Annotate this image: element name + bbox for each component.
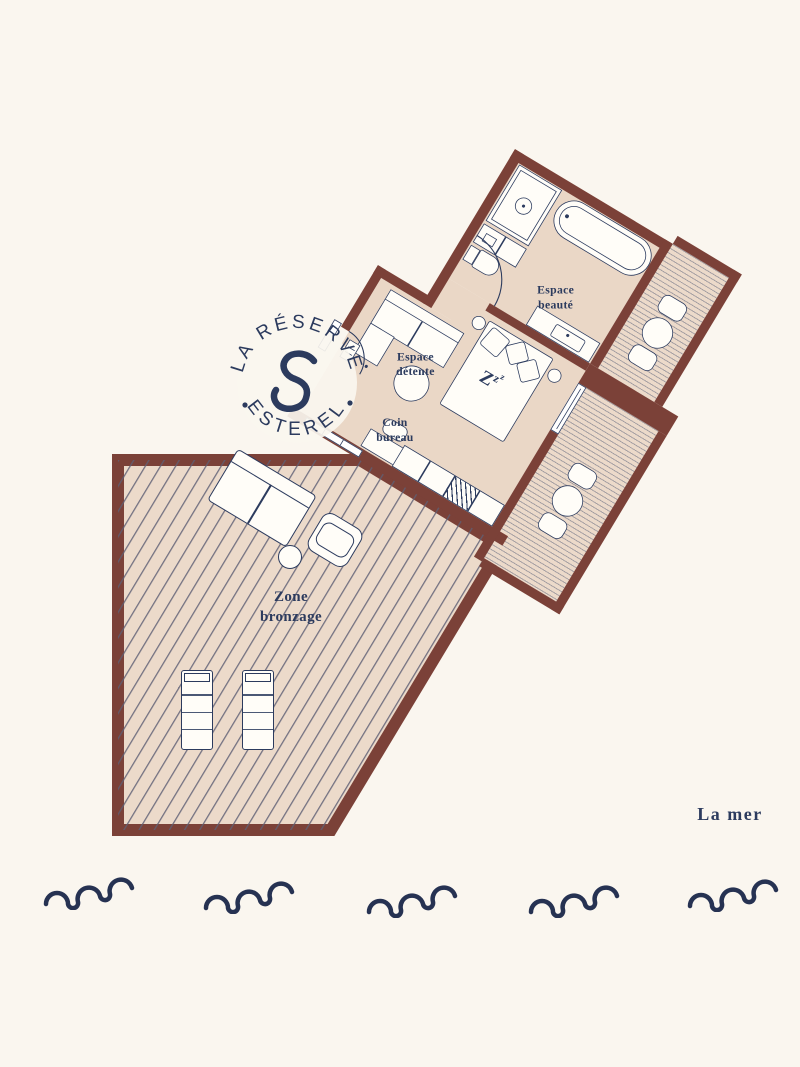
wave-icon bbox=[684, 854, 794, 912]
tanning-label-line1: Zone bbox=[213, 588, 369, 608]
console-line bbox=[345, 351, 352, 356]
wave-icon bbox=[525, 860, 635, 918]
office-label-line1: Coin bbox=[348, 416, 442, 431]
office-label-line2: bureau bbox=[348, 431, 442, 446]
beauty-label-line2: beauté bbox=[509, 298, 603, 313]
lounger-headrest bbox=[245, 673, 271, 682]
sea-label: La mer bbox=[660, 804, 800, 825]
lounger-seam bbox=[182, 729, 212, 731]
tanning-label-line2: bronzage bbox=[213, 608, 369, 628]
wave-icon bbox=[363, 860, 473, 918]
beauty-label-line1: Espace bbox=[509, 283, 603, 298]
lounger-seam bbox=[243, 729, 273, 731]
lounger-seam bbox=[182, 694, 212, 696]
lounge-label-line2: détente bbox=[369, 365, 463, 380]
office-room-label: Coin bureau bbox=[348, 416, 442, 445]
sofa-cushion-divider bbox=[407, 321, 422, 346]
outdoor-chair bbox=[304, 509, 366, 570]
console-line bbox=[348, 346, 355, 351]
lounger-seam bbox=[243, 712, 273, 714]
beauty-room-label: Espace beauté bbox=[509, 283, 603, 312]
floor-plan-canvas: Zone bronzage bbox=[0, 0, 800, 1067]
lounge-room-label: Espace détente bbox=[369, 350, 463, 379]
wardrobe-divider bbox=[418, 461, 431, 482]
lounger-headrest bbox=[184, 673, 210, 682]
outdoor-sofa-cushion-divider bbox=[247, 484, 271, 523]
window-mullion bbox=[322, 429, 326, 435]
lounger-seam bbox=[243, 694, 273, 696]
lounge-label-line1: Espace bbox=[369, 350, 463, 365]
outdoor-side-table bbox=[278, 545, 302, 569]
shelf-box bbox=[482, 233, 498, 247]
lounger-seam bbox=[182, 712, 212, 714]
wave-icon bbox=[40, 852, 150, 910]
outdoor-chair-seat bbox=[313, 520, 357, 561]
sun-lounger bbox=[181, 670, 213, 750]
wave-icon bbox=[200, 856, 310, 914]
tanning-zone-label: Zone bronzage bbox=[213, 588, 369, 627]
sun-lounger bbox=[242, 670, 274, 750]
window-mullion bbox=[340, 440, 344, 446]
